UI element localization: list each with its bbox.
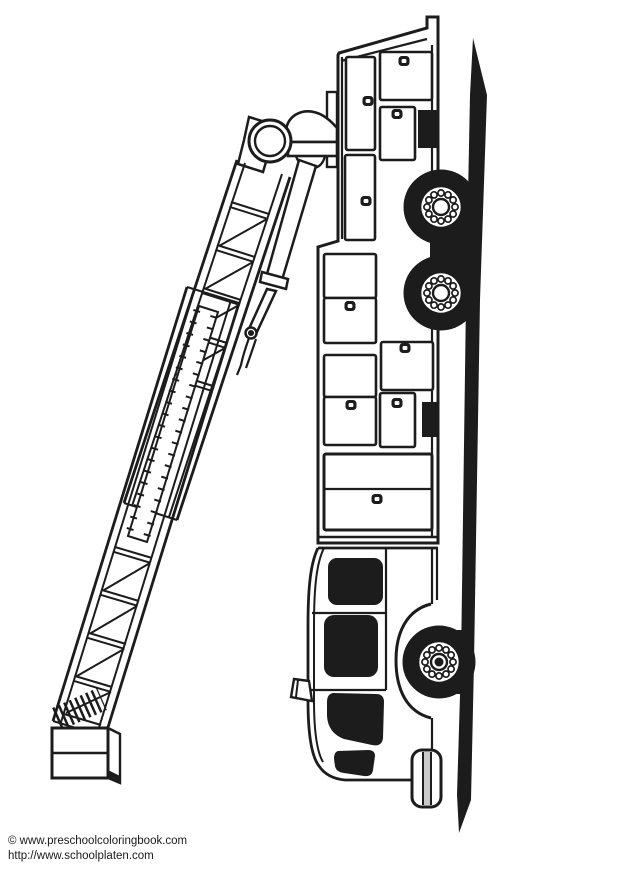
fire-truck-illustration xyxy=(0,0,618,834)
rear-wheel-hub-2 xyxy=(420,272,462,314)
aerial-ladder xyxy=(52,117,291,783)
ladder-end-ribs xyxy=(57,699,102,719)
cab-window-door xyxy=(324,615,378,677)
ladder-foot-box xyxy=(52,728,120,783)
coloring-page: © www.preschoolcoloringbook.com http://w… xyxy=(0,0,618,874)
ladder-pivot xyxy=(249,120,291,162)
copyright-text: © www.preschoolcoloringbook.com xyxy=(8,834,187,849)
cab-window-rear xyxy=(328,558,383,605)
source-url-text: http://www.schoolplaten.com xyxy=(8,849,187,864)
side-mirror xyxy=(291,679,312,701)
caption: © www.preschoolcoloringbook.com http://w… xyxy=(8,834,187,864)
rear-wheel-hub-1 xyxy=(420,186,462,228)
ground-line xyxy=(457,38,487,833)
ladder-pedestal xyxy=(286,92,337,168)
front-wheel xyxy=(403,626,476,699)
